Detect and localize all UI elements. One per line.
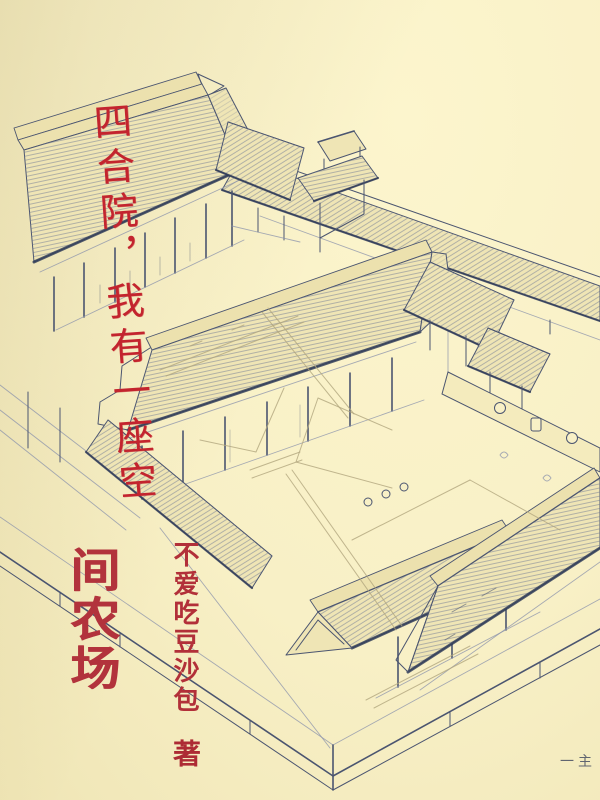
author-name-vertical: 不爱吃豆沙包: [172, 541, 198, 715]
inner-wall-openings: [364, 372, 600, 506]
corner-annotation: 一主: [560, 751, 596, 771]
book-cover: { "cover": { "title": { "script_text": "…: [0, 0, 600, 800]
cover-root: 四合院，我有一座空 间农场 不爱吃豆沙包 著 一主: [0, 0, 600, 800]
author-suffix: 著: [171, 739, 199, 767]
title-bold-vertical: 间农场: [67, 546, 117, 693]
